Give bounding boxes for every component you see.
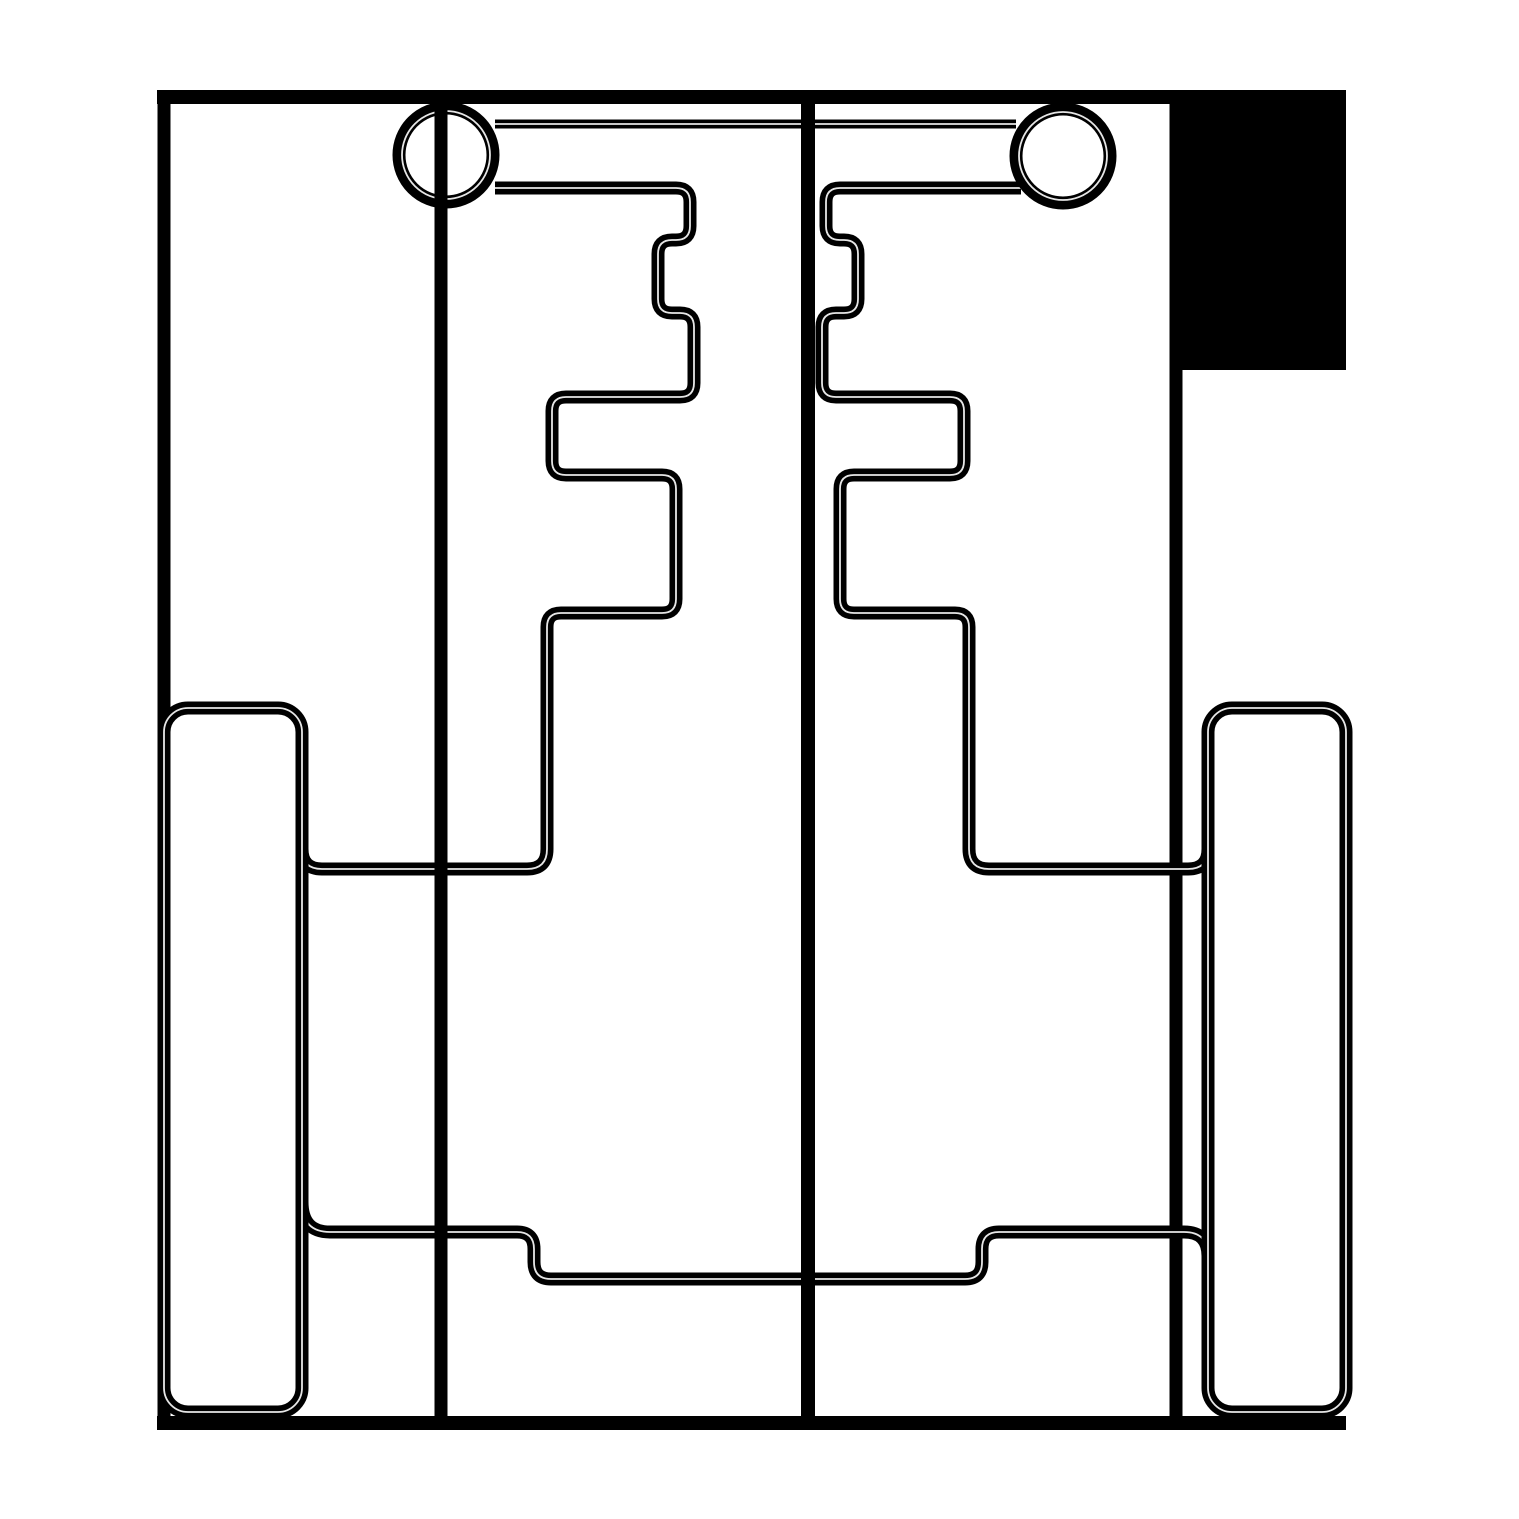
right-pivot-circle (1016, 109, 1110, 203)
right-gate-path (822, 188, 1208, 869)
left-wheel-outline (164, 708, 302, 1412)
right-gate-path-hairline (822, 188, 1208, 869)
right-wheel-outline (1208, 708, 1346, 1412)
right-wheel-outline-hairline (1208, 708, 1346, 1412)
left-gate-path-hairline (302, 188, 694, 869)
diagram-canvas (0, 0, 1519, 1519)
right-pivot-circle-hairline (1019, 112, 1107, 200)
corner-flag-filled-block (1171, 90, 1346, 370)
left-wheel-outline-hairline (164, 708, 302, 1412)
technical-line-diagram (0, 0, 1519, 1519)
left-gate-path (302, 188, 694, 869)
